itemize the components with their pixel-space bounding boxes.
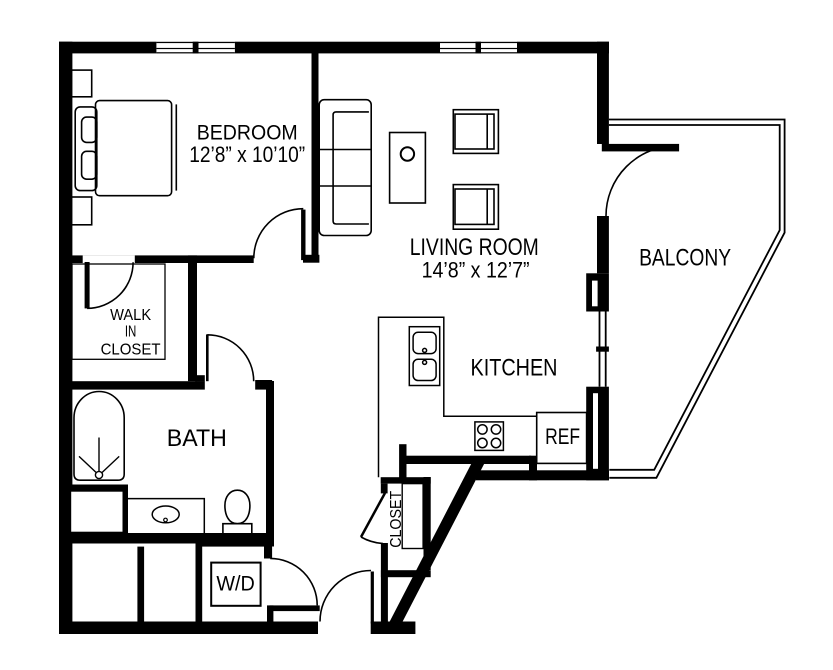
svg-text:W/D: W/D	[216, 573, 255, 596]
svg-text:REF: REF	[545, 424, 580, 449]
svg-text:CLOSET: CLOSET	[101, 341, 161, 358]
svg-text:BATH: BATH	[167, 425, 227, 452]
svg-text:WALK: WALK	[110, 307, 151, 324]
svg-text:BALCONY: BALCONY	[639, 244, 731, 271]
svg-text:12’8” x 10’10”: 12’8” x 10’10”	[189, 142, 305, 167]
svg-text:14’8” x 12’7”: 14’8” x 12’7”	[422, 258, 530, 283]
svg-text:IN: IN	[125, 324, 137, 341]
svg-text:KITCHEN: KITCHEN	[471, 355, 558, 382]
svg-text:CLOSET: CLOSET	[388, 491, 405, 548]
svg-text:BEDROOM: BEDROOM	[197, 121, 298, 144]
